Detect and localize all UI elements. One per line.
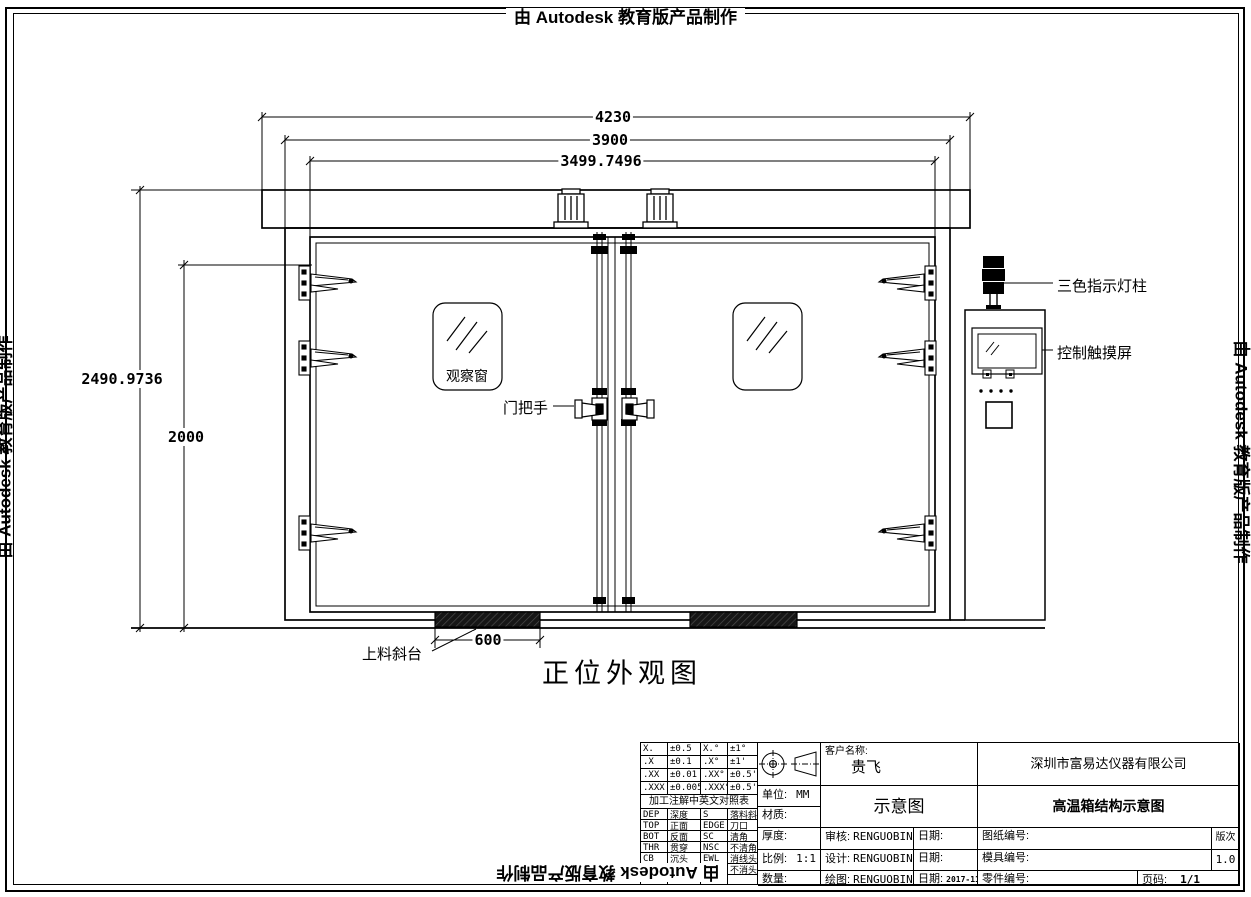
- table-cell: 深度: [668, 809, 701, 820]
- observation-window-right: [733, 303, 802, 390]
- panel-switch: [986, 402, 1012, 428]
- table-cell: SC: [701, 831, 728, 842]
- loading-ramp-left: [435, 612, 540, 627]
- rev-label-cell: 版次: [1212, 828, 1240, 850]
- table-cell: THR: [641, 842, 668, 853]
- design-value: RENGUOBIN: [853, 852, 913, 865]
- table-cell: .XXX: [641, 782, 668, 795]
- callout-touch-screen: 控制触摸屏: [1057, 342, 1132, 363]
- door-hinge: [879, 341, 936, 375]
- draft-cell: 绘图: RENGUOBIN: [821, 871, 914, 886]
- date-label: 日期:: [918, 873, 943, 885]
- draft-date-cell: 日期: 2017-11-13: [914, 871, 978, 886]
- table-cell: S: [701, 809, 728, 820]
- table-cell: .X: [641, 756, 668, 769]
- door-hinge: [879, 516, 936, 550]
- door-hinge: [879, 266, 936, 300]
- touch-screen: [972, 328, 1042, 374]
- table-cell: .X°: [701, 756, 728, 769]
- scale-cell: 比例: 1:1: [758, 850, 821, 871]
- thickness-cell: 厚度:: [758, 828, 821, 850]
- customer-cell: 客户名称: 贵飞: [821, 743, 978, 786]
- table-cell: 正面: [668, 820, 701, 831]
- door-handle-right: [622, 398, 654, 420]
- door-handle-left: [575, 398, 607, 420]
- design-label: 设计:: [825, 853, 850, 865]
- unit-label: 单位:: [762, 789, 787, 801]
- qty-cell: 数量:: [758, 871, 821, 886]
- unit-value: MM: [796, 788, 809, 801]
- callout-door-handle: 门把手: [503, 397, 548, 418]
- draft-date-value: 2017-11-13: [946, 875, 978, 884]
- table-cell: ±1': [728, 756, 758, 769]
- drawing-title-cell: 高温箱结构示意图: [978, 786, 1240, 828]
- table-cell: BOT: [641, 831, 668, 842]
- customer-value: 贵飞: [851, 759, 881, 776]
- sheet-no-label: 图纸编号:: [982, 830, 1029, 842]
- door-hinge: [299, 266, 356, 300]
- dim-top-outer: 4230: [593, 108, 633, 126]
- table-cell: NSC: [701, 842, 728, 853]
- table-cell: ±0.01: [668, 769, 701, 782]
- dim-top-inner: 3499.7496: [558, 152, 643, 170]
- autodesk-banner-left: 由 Autodesk 教育版产品制作: [0, 336, 16, 559]
- dim-left-outer: 2490.9736: [79, 370, 164, 388]
- loading-ramp-right: [690, 612, 797, 627]
- hinges-right: [879, 266, 936, 550]
- dim-top-mid: 3900: [590, 131, 630, 149]
- scale-value: 1:1: [796, 852, 816, 865]
- page-value: 1/1: [1180, 873, 1200, 886]
- design-cell: 设计: RENGUOBIN: [821, 850, 914, 871]
- page-cell: 页码: 1/1: [1138, 871, 1240, 886]
- roof-plenum: [262, 190, 970, 228]
- part-no-cell: 零件编号:: [978, 871, 1138, 886]
- mold-no-cell: 模具编号:: [978, 850, 1212, 871]
- table-cell: .XX: [641, 769, 668, 782]
- unit-cell: 单位: MM: [758, 786, 821, 807]
- light-tower: [982, 256, 1005, 309]
- page-label: 页码:: [1142, 874, 1167, 886]
- cabinet: [285, 228, 950, 620]
- part-no-label: 零件编号:: [982, 873, 1029, 885]
- projection-symbol-icon: [758, 743, 820, 785]
- date-label: 日期:: [918, 852, 943, 864]
- table-cell: TOP: [641, 820, 668, 831]
- table-cell: DEP: [641, 809, 668, 820]
- sheet-no-cell: 图纸编号:: [978, 828, 1212, 850]
- review-label: 审核:: [825, 831, 850, 843]
- rev-value-cell: 1.0: [1212, 850, 1240, 871]
- motor-left: [554, 189, 588, 228]
- table-cell: ±0.005: [668, 782, 701, 795]
- table-cell: ±0.5: [668, 743, 701, 756]
- table-cell: 清角: [728, 831, 758, 842]
- projection-symbol-cell: [758, 743, 821, 786]
- scale-label: 比例:: [762, 853, 787, 865]
- table-header: 加工注解中英文对照表: [641, 795, 758, 809]
- callout-window: 观察窗: [446, 366, 488, 386]
- draft-label: 绘图:: [825, 874, 850, 886]
- table-cell: 贯穿: [668, 842, 701, 853]
- dim-left-inner: 2000: [166, 428, 206, 446]
- control-panel: [965, 310, 1045, 620]
- motor-right: [643, 189, 677, 228]
- door-hinge: [299, 516, 356, 550]
- design-date-cell: 日期:: [914, 850, 978, 871]
- qty-label: 数量:: [762, 873, 787, 885]
- autodesk-banner-right: 由 Autodesk 教育版产品制作: [1231, 341, 1251, 564]
- table-cell: 落料斜度: [728, 809, 758, 820]
- door-hinge: [299, 341, 356, 375]
- autodesk-banner-bottom: 由 Autodesk 教育版产品制作: [452, 862, 764, 887]
- doc-type-cell: 示意图: [821, 786, 978, 828]
- table-cell: X.: [641, 743, 668, 756]
- customer-label: 客户名称:: [825, 746, 868, 757]
- date-label: 日期:: [918, 830, 943, 842]
- callout-light-tower: 三色指示灯柱: [1057, 275, 1147, 296]
- draft-value: RENGUOBIN: [853, 873, 913, 886]
- view-title: 正位外观图: [542, 652, 702, 691]
- callout-loading-ramp: 上料斜台: [362, 643, 422, 664]
- material-label: 材质:: [762, 809, 787, 821]
- review-cell: 审核: RENGUOBIN: [821, 828, 914, 850]
- table-cell: ±0.1: [668, 756, 701, 769]
- table-cell: 刀口: [728, 820, 758, 831]
- table-cell: 不清角: [728, 842, 758, 853]
- table-cell: .XX°: [701, 769, 728, 782]
- table-cell: EDGE: [701, 820, 728, 831]
- drawing-sheet: 4230 3900 3499.7496 2490.9736 2000 600 三…: [0, 0, 1251, 897]
- table-cell: X.°: [701, 743, 728, 756]
- dimension-lines: [131, 112, 1053, 651]
- dim-ramp: 600: [472, 631, 503, 649]
- review-date-cell: 日期:: [914, 828, 978, 850]
- thickness-label: 厚度:: [762, 830, 787, 842]
- table-cell: 反面: [668, 831, 701, 842]
- autodesk-banner-top: 由 Autodesk 教育版产品制作: [0, 3, 1251, 28]
- mold-no-label: 模具编号:: [982, 852, 1029, 864]
- table-cell: ±0.5': [728, 769, 758, 782]
- table-cell: ±0.5': [728, 782, 758, 795]
- company-cell: 深圳市富易达仪器有限公司: [978, 743, 1240, 786]
- table-cell: .XXX°: [701, 782, 728, 795]
- table-cell: ±1°: [728, 743, 758, 756]
- material-cell: 材质:: [758, 807, 821, 828]
- hinges-left: [299, 266, 356, 550]
- review-value: RENGUOBIN: [853, 830, 913, 843]
